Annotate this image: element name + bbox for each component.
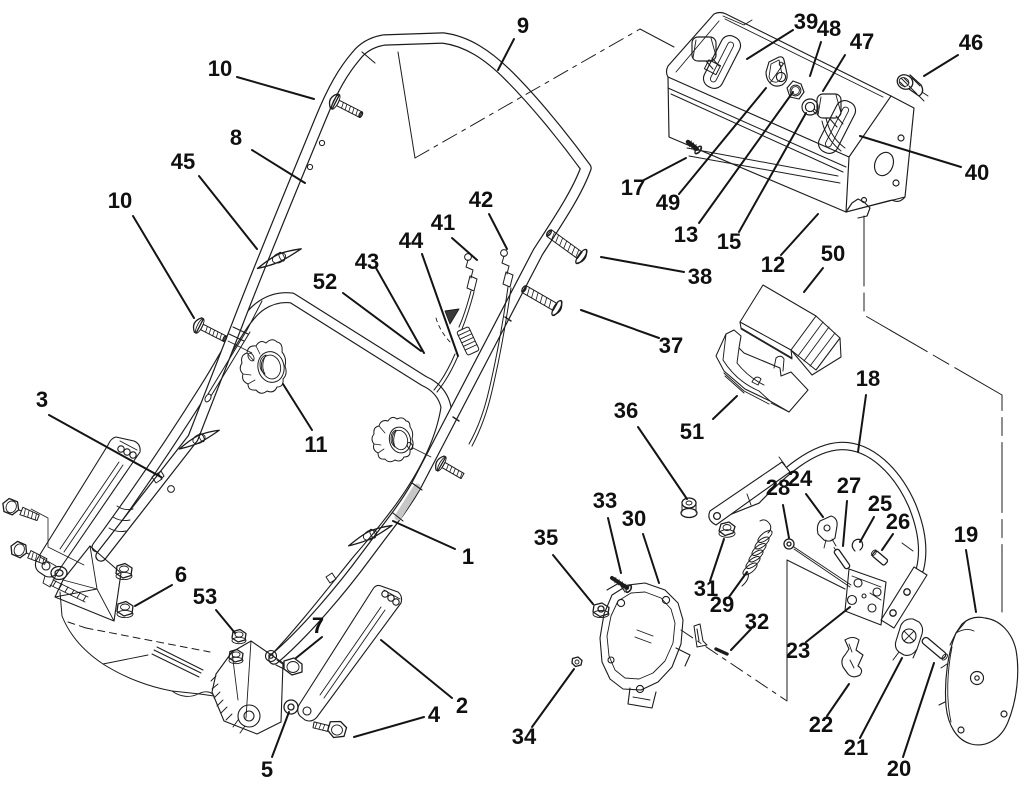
svg-text:10: 10 [108, 188, 132, 213]
svg-text:7: 7 [312, 613, 324, 638]
svg-text:36: 36 [614, 398, 638, 423]
svg-text:3: 3 [36, 387, 48, 412]
svg-text:51: 51 [680, 419, 704, 444]
svg-text:1: 1 [462, 544, 474, 569]
svg-text:47: 47 [850, 29, 874, 54]
svg-text:46: 46 [959, 30, 983, 55]
svg-text:13: 13 [674, 222, 698, 247]
svg-text:49: 49 [656, 190, 680, 215]
svg-text:33: 33 [593, 488, 617, 513]
svg-text:24: 24 [788, 466, 813, 491]
svg-text:21: 21 [844, 735, 868, 760]
svg-text:19: 19 [954, 522, 978, 547]
svg-text:37: 37 [659, 333, 683, 358]
svg-text:23: 23 [786, 638, 810, 663]
svg-text:4: 4 [428, 702, 441, 727]
svg-text:34: 34 [512, 724, 537, 749]
svg-text:5: 5 [261, 757, 273, 782]
svg-text:40: 40 [965, 160, 989, 185]
svg-text:9: 9 [517, 13, 529, 38]
svg-text:39: 39 [794, 9, 818, 34]
svg-text:30: 30 [622, 506, 646, 531]
svg-text:41: 41 [431, 210, 455, 235]
svg-text:17: 17 [621, 175, 645, 200]
svg-text:28: 28 [766, 475, 790, 500]
svg-text:8: 8 [230, 125, 242, 150]
svg-text:35: 35 [534, 525, 558, 550]
svg-text:32: 32 [745, 609, 769, 634]
svg-text:42: 42 [469, 187, 493, 212]
svg-text:6: 6 [175, 562, 187, 587]
svg-text:43: 43 [355, 249, 379, 274]
svg-text:26: 26 [886, 509, 910, 534]
svg-text:44: 44 [399, 228, 424, 253]
svg-text:52: 52 [313, 269, 337, 294]
svg-text:45: 45 [171, 149, 195, 174]
svg-text:50: 50 [821, 241, 845, 266]
svg-text:10: 10 [208, 56, 232, 81]
svg-text:15: 15 [717, 229, 741, 254]
svg-text:38: 38 [688, 264, 712, 289]
svg-text:2: 2 [456, 693, 468, 718]
svg-text:12: 12 [761, 252, 785, 277]
svg-text:29: 29 [710, 592, 734, 617]
svg-text:48: 48 [817, 16, 841, 41]
svg-text:11: 11 [304, 432, 327, 457]
svg-text:18: 18 [856, 366, 880, 391]
svg-text:27: 27 [837, 473, 861, 498]
svg-text:20: 20 [887, 756, 911, 781]
svg-text:53: 53 [193, 584, 217, 609]
svg-text:22: 22 [809, 712, 833, 737]
